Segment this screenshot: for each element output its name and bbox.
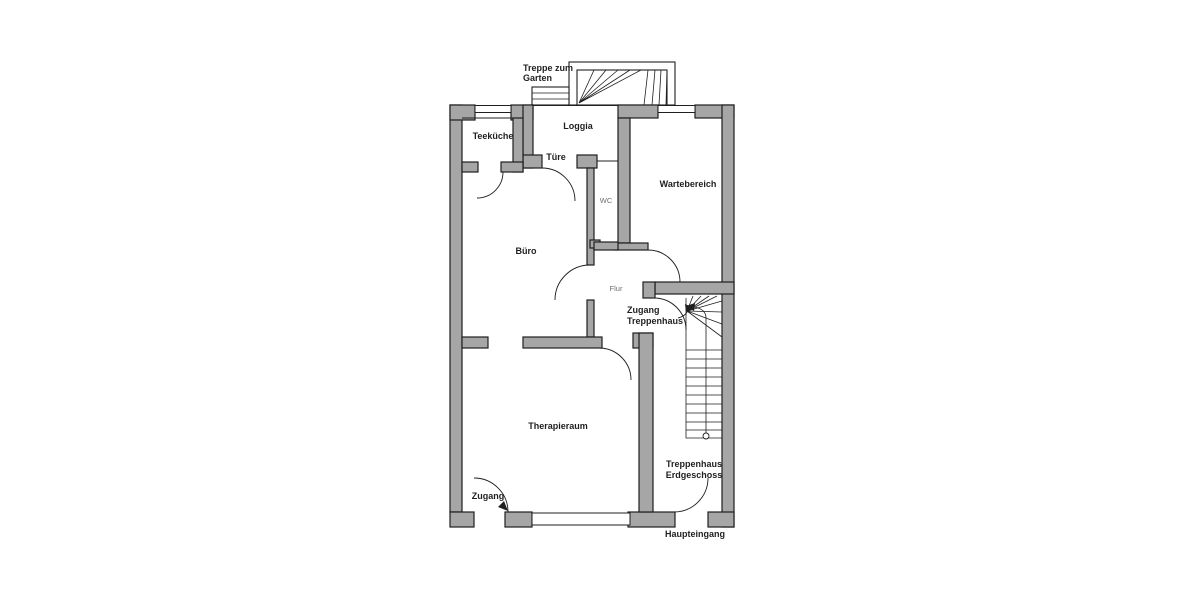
wall-segment	[505, 512, 532, 527]
window-bottom	[532, 513, 630, 525]
window-top-left	[475, 106, 511, 113]
staircase-walking-line	[686, 303, 709, 439]
wall-segment	[462, 337, 488, 348]
label-wc: WC	[600, 196, 613, 205]
staircase-winder-treads	[687, 296, 722, 337]
wall-segment	[643, 282, 655, 298]
label-hallway: Flur	[610, 284, 623, 293]
wall-segment	[587, 300, 594, 337]
wall-segment	[587, 168, 594, 265]
door-arc-loggia	[542, 168, 575, 201]
floorplan-drawing: Treppe zum Garten Loggia Türe Teeküche W…	[0, 0, 1200, 600]
wall-segment	[639, 333, 653, 512]
door-arc-main-entrance	[674, 478, 708, 512]
label-stair-access-line2: Treppenhaus	[627, 316, 683, 326]
label-office: Büro	[516, 246, 537, 256]
wall-segment	[618, 118, 630, 243]
wall-segment	[722, 105, 734, 527]
label-main-entrance: Haupteingang	[665, 529, 725, 539]
label-stair-access-line1: Zugang	[627, 305, 660, 315]
label-kitchenette: Teeküche	[473, 131, 514, 141]
wall-segment	[655, 282, 734, 294]
door-arc-office	[555, 265, 590, 300]
label-garden-stairs-line2: Garten	[523, 73, 552, 83]
label-loggia: Loggia	[563, 121, 593, 131]
floorplan-canvas: Treppe zum Garten Loggia Türe Teeküche W…	[0, 0, 1200, 600]
label-waiting-area: Wartebereich	[660, 179, 717, 189]
wall-segment	[708, 512, 734, 527]
wall-segment	[577, 155, 597, 168]
wall-segment	[450, 512, 474, 527]
door-arc-therapy-room	[599, 348, 631, 380]
wall-segment	[523, 155, 542, 168]
walking-line-start-dot	[703, 433, 709, 439]
wall-segment	[450, 105, 462, 512]
main-staircase	[686, 296, 722, 439]
wall-segment	[594, 242, 618, 250]
staircase-straight-treads	[686, 350, 722, 430]
wall-segment	[615, 243, 648, 250]
label-door: Türe	[546, 152, 566, 162]
label-staircase-line2: Erdgeschoss	[666, 470, 723, 480]
door-arc-kitchenette	[477, 172, 503, 198]
wall-segment	[618, 105, 658, 118]
label-entrance: Zugang	[472, 491, 505, 501]
label-staircase-line1: Treppenhaus	[666, 459, 722, 469]
wall-segment	[501, 162, 523, 172]
wall-segment	[523, 337, 602, 348]
window-top-right	[658, 106, 695, 113]
door-arc-waiting-area	[648, 250, 680, 282]
wall-segment	[462, 162, 478, 172]
garden-stairs-landing	[532, 87, 569, 105]
label-garden-stairs-line1: Treppe zum	[523, 63, 573, 73]
label-therapy-room: Therapieraum	[528, 421, 588, 431]
wall-segment	[628, 512, 675, 527]
labels: Treppe zum Garten Loggia Türe Teeküche W…	[472, 63, 725, 539]
